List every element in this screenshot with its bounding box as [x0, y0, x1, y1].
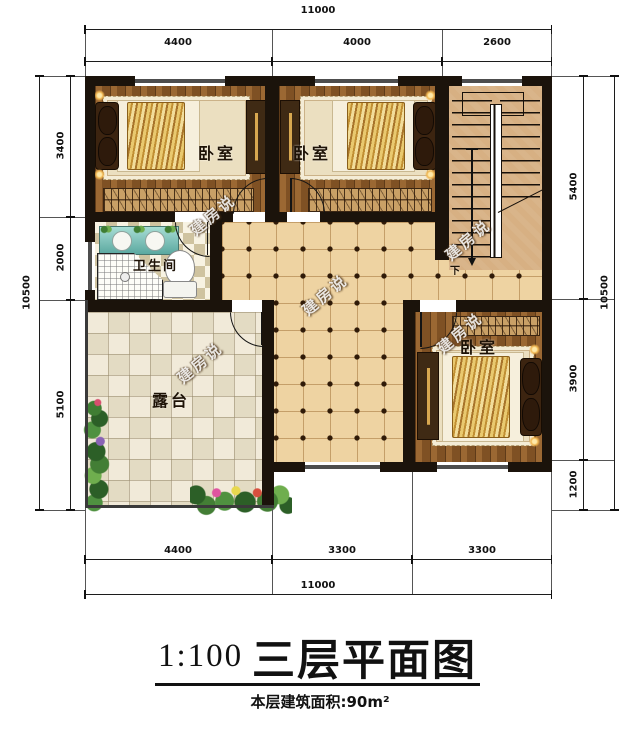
- bedroom2-pillow: [415, 106, 434, 135]
- sink: [145, 231, 165, 251]
- dim-label: 3400: [56, 124, 67, 168]
- dim-label-bottom-overall: 11000: [288, 580, 348, 591]
- bedroom1-wall-lamp: [94, 169, 105, 180]
- dim-line-right-overall: [614, 76, 615, 510]
- dim-label: 2000: [56, 236, 67, 280]
- extension-line: [412, 472, 413, 594]
- sink: [112, 231, 132, 251]
- wall-bottom: [380, 462, 437, 472]
- room-label-terrace: 露台: [152, 387, 190, 411]
- dim-line-left-overall: [39, 76, 40, 510]
- dim-tick: [66, 509, 75, 511]
- extension-line: [39, 510, 85, 511]
- dim-tick: [35, 509, 44, 511]
- plant-icon: [100, 225, 112, 234]
- dim-tick: [271, 57, 273, 66]
- terrace-railing-bottom: [85, 505, 274, 508]
- dim-tick: [411, 555, 413, 564]
- dim-tick: [66, 299, 75, 301]
- dim-tick: [551, 25, 553, 34]
- dim-tick: [579, 298, 588, 300]
- terrace-railing-left: [85, 300, 88, 508]
- wall-bedroom2-stairs: [435, 76, 449, 260]
- dim-label: 5400: [569, 165, 580, 209]
- dim-label: 2600: [467, 37, 527, 48]
- dim-label: 3900: [569, 357, 580, 401]
- dim-label: 4400: [148, 37, 208, 48]
- bedroom1-cabinet: [246, 100, 266, 174]
- extension-line: [551, 472, 552, 594]
- dim-tick: [84, 25, 86, 34]
- stairs-center-rail: [490, 104, 502, 258]
- bedroom2-bed-blanket: [347, 102, 405, 170]
- room-label-bathroom: 卫生间: [133, 255, 178, 274]
- dim-tick: [271, 555, 273, 564]
- dim-tick: [610, 75, 619, 77]
- bedroom3-dresser: [417, 352, 439, 440]
- dim-tick: [84, 57, 86, 66]
- bedroom3-pillow: [522, 362, 540, 395]
- title-scale: 1:100: [158, 638, 243, 675]
- dim-tick: [66, 75, 75, 77]
- window-bathroom: [85, 242, 95, 290]
- dim-label: 4400: [148, 545, 208, 556]
- extension-line: [442, 29, 443, 76]
- dim-tick: [441, 57, 443, 66]
- dim-line-bottom-segments: [85, 559, 552, 560]
- shower-drain: [120, 272, 130, 282]
- bathroom-vanity: [99, 226, 179, 255]
- plant-icon: [133, 225, 145, 234]
- extension-line: [39, 76, 85, 77]
- room-label-bedroom1: 卧室: [198, 140, 236, 164]
- window-hall-bottom: [305, 462, 380, 472]
- bedroom3-wall-lamp: [529, 436, 540, 447]
- bedroom2-wardrobe: [308, 188, 432, 212]
- dim-line-top-segments: [85, 61, 552, 62]
- door-leaf-terrace: [261, 312, 263, 345]
- wall-bedrooms-bottom: [320, 212, 442, 222]
- dim-tick: [579, 459, 588, 461]
- dim-tick: [35, 75, 44, 77]
- extension-line: [551, 29, 552, 76]
- plant-cluster: [190, 476, 292, 518]
- extension-line: [39, 300, 85, 301]
- door-leaf-bedroom3: [420, 312, 422, 347]
- dim-line-left-segments: [70, 76, 71, 510]
- stairs-right-flight: [500, 100, 540, 208]
- door-leaf-bedroom1: [265, 178, 267, 212]
- bedroom1-pillow: [98, 106, 117, 135]
- dim-line-bottom-overall: [85, 594, 552, 595]
- wall-bottom: [262, 462, 305, 472]
- page-title: 三层平面图: [252, 626, 477, 688]
- bedroom3-pillow: [522, 398, 540, 431]
- window-bedroom3: [437, 462, 508, 472]
- bathroom-toilet-tank: [163, 281, 197, 298]
- dim-label: 5100: [56, 383, 67, 427]
- bedroom1-wall-lamp: [94, 90, 105, 101]
- floor-plan-canvas: 下 卧室 卧室 卧室 卫生间 露台: [0, 0, 640, 732]
- dim-tick: [579, 509, 588, 511]
- wall-terrace-top: [85, 300, 232, 312]
- dim-label-right-overall: 10500: [600, 271, 611, 315]
- extension-line: [39, 217, 85, 218]
- bedroom1-pillow: [98, 137, 117, 166]
- dim-tick: [579, 75, 588, 77]
- dim-tick: [66, 216, 75, 218]
- dim-label-left-overall: 10500: [22, 271, 33, 315]
- bedroom3-bed-blanket: [452, 356, 510, 438]
- dim-label: 4000: [327, 37, 387, 48]
- stairs-arrow-head: [468, 258, 476, 266]
- dim-label: 3300: [452, 545, 512, 556]
- wall-bedroom3-left: [403, 300, 415, 462]
- bedroom2-pillow: [415, 137, 434, 166]
- dim-tick: [610, 509, 619, 511]
- room-label-bedroom2: 卧室: [293, 140, 331, 164]
- extension-line: [85, 29, 86, 76]
- extension-line: [85, 508, 86, 594]
- dim-line-right-segments: [583, 76, 584, 510]
- dim-tick: [551, 57, 553, 66]
- dim-label: 3300: [312, 545, 372, 556]
- wall-bottom: [508, 462, 552, 472]
- wall-bedrooms-bottom: [266, 212, 287, 222]
- door-leaf-bedroom2: [290, 178, 292, 212]
- window-stairs: [462, 76, 522, 86]
- dim-tick: [84, 590, 86, 599]
- dim-tick: [84, 555, 86, 564]
- dim-line-top-overall: [85, 29, 552, 30]
- wall-bedrooms-bottom: [85, 212, 175, 222]
- dim-tick: [551, 590, 553, 599]
- plant-icon: [164, 225, 176, 234]
- window-bedroom1: [135, 76, 225, 86]
- window-bedroom2: [315, 76, 398, 86]
- title-underline: [155, 683, 480, 686]
- extension-line: [272, 508, 273, 594]
- bedroom1-bed-blanket: [127, 102, 185, 170]
- wall-bedroom3-top: [415, 300, 420, 312]
- dim-label: 1200: [569, 463, 580, 507]
- area-note: 本层建筑面积:90m²: [0, 691, 640, 712]
- plant-cluster: [78, 398, 114, 512]
- dim-label-top-overall: 11000: [288, 5, 348, 16]
- wall-right: [542, 76, 552, 472]
- dim-tick: [551, 555, 553, 564]
- extension-line: [272, 29, 273, 76]
- bedroom3-wall-lamp: [529, 344, 540, 355]
- wall-bathroom-right: [210, 222, 222, 312]
